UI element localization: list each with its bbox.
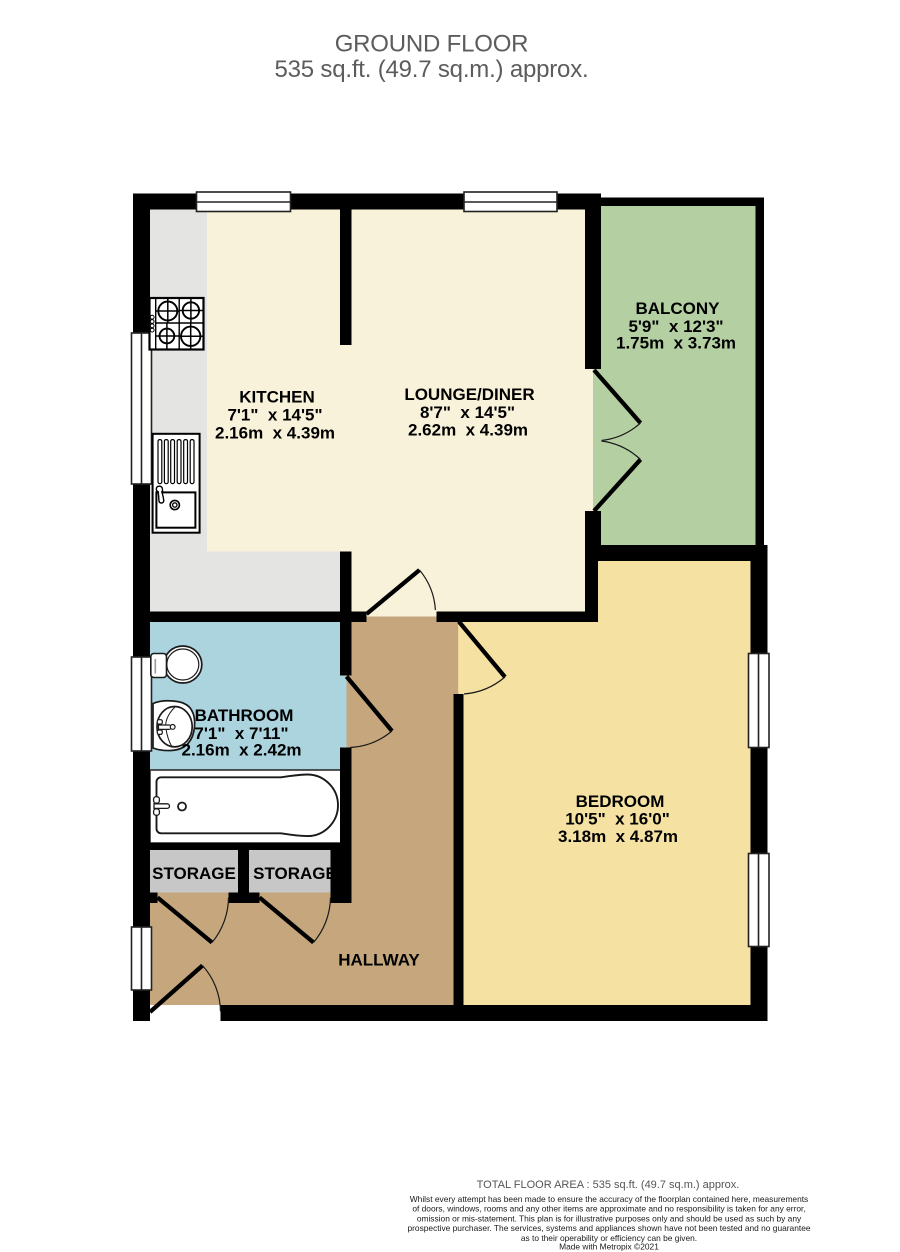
svg-text:prospective purchaser. The ser: prospective purchaser. The services, sys…	[407, 1223, 810, 1233]
svg-text:GROUND FLOOR: GROUND FLOOR	[335, 31, 529, 58]
svg-text:omission or mis-statement. Thi: omission or mis-statement. This plan is …	[417, 1213, 802, 1223]
svg-text:2.16m x 4.39m: 2.16m x 4.39m	[215, 424, 335, 443]
svg-text:LOUNGE/DINER: LOUNGE/DINER	[404, 385, 534, 404]
svg-text:STORAGE: STORAGE	[253, 864, 337, 883]
svg-text:TOTAL FLOOR AREA : 535 sq.ft.: TOTAL FLOOR AREA : 535 sq.ft. (49.7 sq.m…	[477, 1179, 740, 1191]
svg-text:BEDROOM: BEDROOM	[576, 792, 665, 811]
svg-text:HALLWAY: HALLWAY	[338, 951, 420, 970]
svg-text:7'1" x 14'5": 7'1" x 14'5"	[227, 406, 322, 425]
svg-text:KITCHEN: KITCHEN	[239, 388, 315, 407]
svg-text:1.75m x 3.73m: 1.75m x 3.73m	[616, 334, 736, 353]
svg-text:3.18m x 4.87m: 3.18m x 4.87m	[558, 827, 678, 846]
svg-text:8'7" x 14'5": 8'7" x 14'5"	[420, 403, 515, 422]
svg-text:STORAGE: STORAGE	[152, 864, 236, 883]
svg-text:10'5" x 16'0": 10'5" x 16'0"	[565, 810, 670, 829]
svg-text:BALCONY: BALCONY	[635, 299, 720, 318]
svg-text:Whilst every attempt has been: Whilst every attempt has been made to en…	[410, 1194, 809, 1204]
svg-text:2.16m x 2.42m: 2.16m x 2.42m	[181, 741, 301, 760]
svg-text:Made with Metropix ©2021: Made with Metropix ©2021	[559, 1242, 659, 1252]
svg-text:of doors, windows, rooms and a: of doors, windows, rooms and any other i…	[412, 1204, 805, 1214]
svg-text:535 sq.ft. (49.7 sq.m.) approx: 535 sq.ft. (49.7 sq.m.) approx.	[275, 56, 589, 83]
svg-text:2.62m x 4.39m: 2.62m x 4.39m	[408, 421, 528, 440]
svg-text:BATHROOM: BATHROOM	[195, 706, 294, 725]
